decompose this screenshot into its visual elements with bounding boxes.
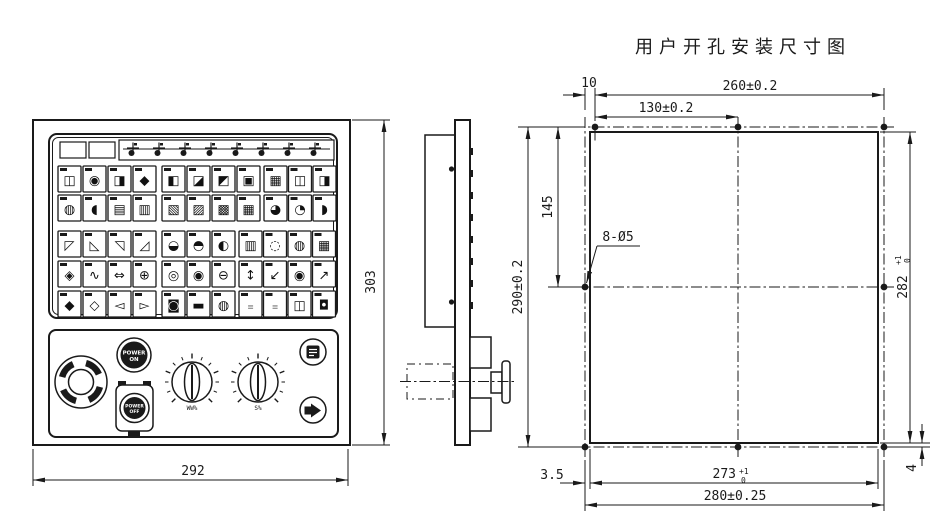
key-icon: ↗ <box>319 269 330 284</box>
panel-key: ◩ <box>212 166 235 192</box>
key-icon: ◌ <box>269 239 280 254</box>
panel-key: ◸ <box>58 231 81 257</box>
key-icon: ▬ <box>192 299 204 314</box>
panel-key: ⊖ <box>212 261 235 287</box>
key-icon: ▥ <box>138 203 150 218</box>
panel-key: ◒ <box>162 231 185 257</box>
power-on-button: POWER ON <box>117 338 151 372</box>
dim-280: 280±0.25 <box>704 489 767 504</box>
panel-key: ▦ <box>237 195 260 221</box>
control-section: POWER ON POWER OFF WW% <box>49 330 338 437</box>
key-icon: ◘ <box>319 299 329 314</box>
key-icon: ◎ <box>168 269 179 284</box>
key-icon: ◙ <box>167 299 180 314</box>
dim-290: 290±0.2 <box>511 260 526 315</box>
key-edge-nub <box>470 148 473 155</box>
panel-key: ◨ <box>108 166 131 192</box>
key-icon: ◇ <box>90 299 100 314</box>
dim-front-width: 292 <box>33 449 348 486</box>
key-icon: ▦ <box>269 174 281 189</box>
key-icon: ◗ <box>321 203 328 218</box>
panel-key: ▦ <box>264 166 287 192</box>
dim-corner-offset: 4 <box>905 424 922 472</box>
panel-key: ◔ <box>289 195 312 221</box>
panel-key: ▩ <box>212 195 235 221</box>
panel-key: ⊕ <box>133 261 156 287</box>
key-icon: ◫ <box>294 174 306 189</box>
panel-key: ◍ <box>212 291 235 317</box>
key-icon: ◍ <box>294 239 305 254</box>
panel-key: ◆ <box>58 291 81 317</box>
panel-key: ↙ <box>264 261 287 287</box>
panel-key: ▣ <box>237 166 260 192</box>
panel-key: ∿ <box>83 261 106 287</box>
knob-left-label: WW% <box>187 405 198 412</box>
key-icon: ◕ <box>270 203 281 218</box>
panel-key: ▧ <box>162 195 185 221</box>
drawing-title: 用户开孔安装尺寸图 <box>635 37 851 58</box>
key-icon: ⊖ <box>218 269 229 284</box>
power-off-label: POWER <box>125 404 144 410</box>
panel-key: ≡ <box>264 291 287 317</box>
panel-key: ◓ <box>187 231 210 257</box>
panel-key: ◉ <box>187 261 210 287</box>
key-icon: ◍ <box>218 299 229 314</box>
power-on-label-2: ON <box>129 357 139 363</box>
key-icon: ◉ <box>193 269 204 284</box>
key-icon: ◉ <box>89 174 100 189</box>
panel-key: ◈ <box>58 261 81 287</box>
panel-key: ◿ <box>133 231 156 257</box>
key-icon: ◔ <box>294 203 305 218</box>
key-icon: ▦ <box>242 203 254 218</box>
key-edge-nub <box>470 170 473 177</box>
key-edge-nub <box>470 236 473 243</box>
key-icon: ▣ <box>242 174 254 189</box>
key-icon: ◫ <box>63 174 75 189</box>
power-off-label-2: OFF <box>130 409 140 415</box>
side-view <box>400 120 516 445</box>
panel-key: ◆ <box>133 166 156 192</box>
key-icon: ◅ <box>115 299 125 314</box>
key-grid: ◫◉◨◆◧◪◩▣▦◫◨◍◖▤▥▧▨▩▦◕◔◗◸◺◹◿◒◓◐▥◌◍▦◈∿⇔⊕◎◉⊖… <box>58 166 336 317</box>
dim-145: 145 <box>541 195 556 218</box>
holes-label: 8-Ø5 <box>602 230 633 245</box>
key-icon: ◓ <box>193 239 204 254</box>
panel-key: ↗ <box>313 261 336 287</box>
key-icon: ◒ <box>168 239 179 254</box>
dim-cutout-width: 273 +1 0 <box>590 467 878 485</box>
rear-enclosure <box>425 135 455 327</box>
key-icon: ≡ <box>272 303 279 312</box>
key-icon: ◐ <box>218 239 229 254</box>
key-edge-nub <box>470 192 473 199</box>
key-icon: ◨ <box>318 174 330 189</box>
round-button-top <box>300 339 326 365</box>
front-view: ◫◉◨◆◧◪◩▣▦◫◨◍◖▤▥▧▨▩▦◕◔◗◸◺◹◿◒◓◐▥◌◍▦◈∿⇔⊕◎◉⊖… <box>33 120 390 486</box>
key-icon: ◫ <box>293 299 305 314</box>
dim-top-half: 130±0.2 <box>595 101 738 117</box>
dim-front-height: 303 <box>352 120 390 445</box>
dim-303: 303 <box>364 270 379 293</box>
panel-key: ▨ <box>187 195 210 221</box>
dim-292: 292 <box>181 464 204 479</box>
key-icon: ◪ <box>192 174 204 189</box>
dim-282-tol-low: 0 <box>903 258 912 263</box>
key-icon: ◹ <box>115 239 125 254</box>
panel-key: ▦ <box>313 231 336 257</box>
key-icon: ▩ <box>217 203 229 218</box>
dim-130: 130±0.2 <box>639 101 694 116</box>
key-icon: ◨ <box>113 174 125 189</box>
panel-key: ⇔ <box>108 261 131 287</box>
panel-key: ◍ <box>288 231 311 257</box>
panel-key: ▬ <box>187 291 210 317</box>
key-icon: ⇔ <box>114 269 125 284</box>
panel-key: ◖ <box>83 195 106 221</box>
key-icon: ▦ <box>318 239 330 254</box>
panel-key: ◘ <box>313 291 336 317</box>
panel-key: ◫ <box>288 291 311 317</box>
panel-key: ◍ <box>58 195 81 221</box>
key-icon: ◩ <box>217 174 229 189</box>
dim-side-hole: 145 <box>541 127 558 287</box>
key-edge-nub <box>470 302 473 309</box>
indicator-window <box>60 142 86 158</box>
holes-callout: 8-Ø5 <box>587 230 641 283</box>
dim-offset-10: 10 <box>563 76 597 95</box>
screw-dot <box>449 166 454 171</box>
dim-282-tol-up: +1 <box>894 255 903 265</box>
knob-right-label: S% <box>254 405 262 412</box>
key-icon: ◈ <box>65 269 75 284</box>
key-icon: ◆ <box>140 174 150 189</box>
panel-key: ◉ <box>288 261 311 287</box>
panel-key: ◐ <box>212 231 235 257</box>
key-icon: ◧ <box>167 174 179 189</box>
key-icon: ≡ <box>247 303 254 312</box>
dim-pattern-height: 290±0.2 <box>511 127 528 447</box>
dim-top-span: 260±0.2 <box>595 79 884 95</box>
panel-key: ◙ <box>162 291 185 317</box>
key-icon: ◺ <box>90 239 100 254</box>
key-icon: ↙ <box>270 269 281 284</box>
panel-key: ▤ <box>108 195 131 221</box>
panel-key: ◫ <box>289 166 312 192</box>
panel-key: ◫ <box>58 166 81 192</box>
mode-strip <box>119 140 334 160</box>
key-icon: ◿ <box>140 239 150 254</box>
panel-key: ◌ <box>264 231 287 257</box>
panel-key: ◎ <box>162 261 185 287</box>
dim-273: 273 <box>713 467 736 482</box>
panel-key: ◪ <box>187 166 210 192</box>
panel-key: ▻ <box>133 291 156 317</box>
dim-4: 4 <box>905 464 920 472</box>
panel-key: ◕ <box>264 195 287 221</box>
key-edge-nub <box>470 258 473 265</box>
dim-10: 10 <box>581 76 597 91</box>
panel-key: ◗ <box>313 195 336 221</box>
panel-key: ◅ <box>108 291 131 317</box>
panel-key: ▥ <box>239 231 262 257</box>
round-button-bottom <box>300 397 326 423</box>
key-icon: ◆ <box>65 299 75 314</box>
key-icon: ◍ <box>64 203 75 218</box>
panel-key: ≡ <box>239 291 262 317</box>
power-off-covered-button: POWER OFF <box>116 381 153 436</box>
panel-key: ◇ <box>83 291 106 317</box>
cutout-view: 用户开孔安装尺寸图 <box>511 37 930 511</box>
panel-key: ↕ <box>239 261 262 287</box>
panel-key: ◨ <box>313 166 336 192</box>
key-icon: ∿ <box>89 269 100 284</box>
panel-key: ◹ <box>108 231 131 257</box>
dim-273-tol-low: 0 <box>741 476 746 485</box>
key-icon: ◉ <box>294 269 305 284</box>
dim-260: 260±0.2 <box>723 79 778 94</box>
key-icon: ▤ <box>113 203 125 218</box>
key-icon: ▨ <box>192 203 204 218</box>
dim-bottom-span: 280±0.25 <box>585 489 884 505</box>
panel-key: ▥ <box>133 195 156 221</box>
panel-key: ◺ <box>83 231 106 257</box>
dim-3-5: 3.5 <box>540 468 563 483</box>
installation-drawing-page: ◫◉◨◆◧◪◩▣▦◫◨◍◖▤▥▧▨▩▦◕◔◗◸◺◹◿◒◓◐▥◌◍▦◈∿⇔⊕◎◉⊖… <box>0 0 950 523</box>
power-on-label: POWER <box>123 351 147 357</box>
dim-273-tol-up: +1 <box>739 467 749 476</box>
key-icon: ◸ <box>65 239 75 254</box>
keypad-bezel: ◫◉◨◆◧◪◩▣▦◫◨◍◖▤▥▧▨▩▦◕◔◗◸◺◹◿◒◓◐▥◌◍▦◈∿⇔⊕◎◉⊖… <box>49 134 337 318</box>
panel-key: ◧ <box>162 166 185 192</box>
indicator-window <box>89 142 115 158</box>
key-icon: ▧ <box>167 203 179 218</box>
screw-dot <box>449 299 454 304</box>
key-icon: ⊕ <box>139 269 150 284</box>
dim-edge-offset: 3.5 <box>540 468 585 483</box>
key-icon: ▥ <box>244 239 256 254</box>
key-edge-nub <box>470 280 473 287</box>
key-icon: ▻ <box>140 299 150 314</box>
key-icon: ◖ <box>91 203 98 218</box>
key-edge-nub <box>470 214 473 221</box>
panel-key: ◉ <box>83 166 106 192</box>
front-plate-edge <box>455 120 470 445</box>
key-icon: ↕ <box>245 269 256 284</box>
dim-cutout-height: 282 +1 0 <box>894 132 912 443</box>
dim-282: 282 <box>896 275 911 298</box>
estop-button <box>55 356 107 408</box>
